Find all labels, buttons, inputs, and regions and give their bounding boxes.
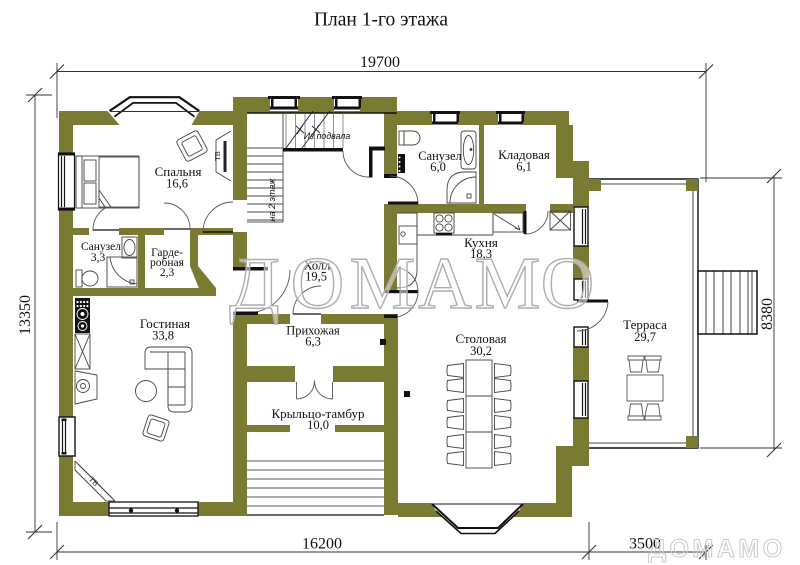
svg-text:на 2 этаж: на 2 этаж (267, 178, 277, 222)
svg-text:О: О (541, 243, 594, 325)
svg-text:6,3: 6,3 (305, 335, 321, 349)
svg-text:33,8: 33,8 (152, 329, 174, 343)
svg-text:ТВ: ТВ (213, 151, 222, 161)
svg-text:10,0: 10,0 (307, 418, 329, 432)
svg-text:6,1: 6,1 (516, 160, 532, 174)
svg-text:М: М (475, 243, 541, 325)
svg-text:30,2: 30,2 (470, 344, 492, 358)
svg-text:2,3: 2,3 (160, 267, 175, 279)
svg-text:16200: 16200 (302, 536, 342, 553)
svg-text:Д: Д (229, 243, 279, 325)
svg-text:ДОМАМО: ДОМАМО (648, 535, 785, 563)
svg-text:6,0: 6,0 (430, 160, 446, 174)
svg-text:29,7: 29,7 (634, 330, 656, 344)
svg-text:О: О (291, 243, 344, 325)
svg-text:3,3: 3,3 (91, 252, 106, 264)
svg-text:План 1-го этажа: План 1-го этажа (314, 10, 448, 31)
svg-text:Из подвала: Из подвала (304, 131, 351, 141)
svg-text:8380: 8380 (759, 298, 776, 330)
svg-text:13350: 13350 (17, 295, 34, 335)
svg-text:А: А (418, 243, 471, 325)
svg-text:16,6: 16,6 (166, 177, 188, 191)
svg-text:М: М (350, 243, 416, 325)
svg-text:19700: 19700 (360, 54, 400, 71)
